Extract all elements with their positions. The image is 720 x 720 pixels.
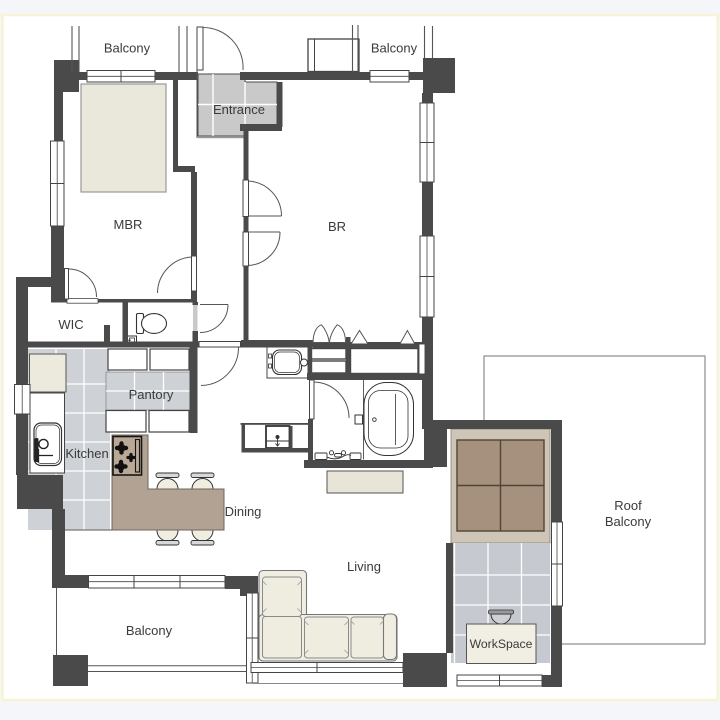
svg-text:Dining: Dining — [225, 504, 262, 519]
svg-text:BR: BR — [328, 219, 346, 234]
svg-text:Roof: Roof — [614, 498, 642, 513]
svg-text:WIC: WIC — [58, 317, 83, 332]
svg-text:Kitchen: Kitchen — [65, 446, 108, 461]
svg-text:Balcony: Balcony — [605, 514, 652, 529]
svg-text:MBR: MBR — [114, 217, 143, 232]
svg-text:Entrance: Entrance — [213, 102, 265, 117]
svg-text:Balcony: Balcony — [126, 623, 173, 638]
svg-text:Balcony: Balcony — [104, 41, 151, 56]
svg-text:Balcony: Balcony — [371, 41, 418, 56]
svg-text:Pantory: Pantory — [129, 387, 174, 402]
svg-text:Living: Living — [347, 559, 381, 574]
svg-text:WorkSpace: WorkSpace — [470, 637, 533, 651]
